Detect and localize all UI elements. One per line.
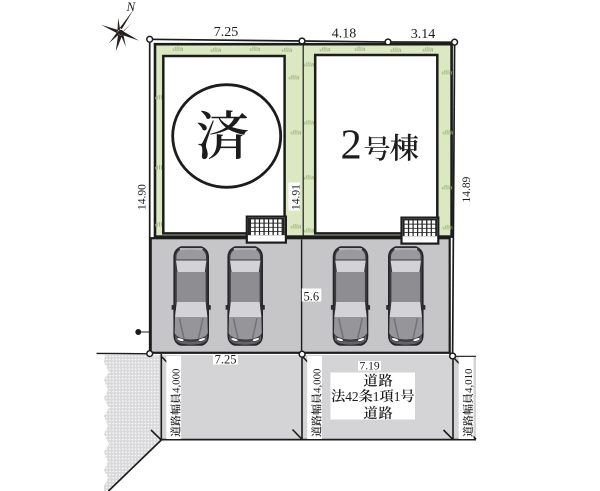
svg-text:14.90: 14.90	[137, 184, 149, 210]
svg-text:14.91: 14.91	[290, 184, 302, 210]
svg-text:4.18: 4.18	[332, 26, 357, 41]
svg-text:14.89: 14.89	[461, 176, 473, 202]
svg-text:7.25: 7.25	[215, 353, 237, 367]
svg-text:5.6: 5.6	[304, 290, 320, 304]
svg-text:2: 2	[341, 122, 362, 169]
svg-text:7.19: 7.19	[359, 361, 379, 373]
svg-text:4,000: 4,000	[171, 368, 183, 393]
svg-text:1: 1	[394, 389, 401, 404]
svg-text:1: 1	[373, 389, 380, 404]
svg-text:7.25: 7.25	[214, 25, 239, 40]
svg-text:N: N	[125, 0, 136, 14]
svg-text:4,010: 4,010	[463, 368, 475, 393]
svg-text:42: 42	[345, 389, 358, 404]
svg-text:4,000: 4,000	[312, 368, 324, 393]
svg-text:3.14: 3.14	[411, 27, 436, 42]
